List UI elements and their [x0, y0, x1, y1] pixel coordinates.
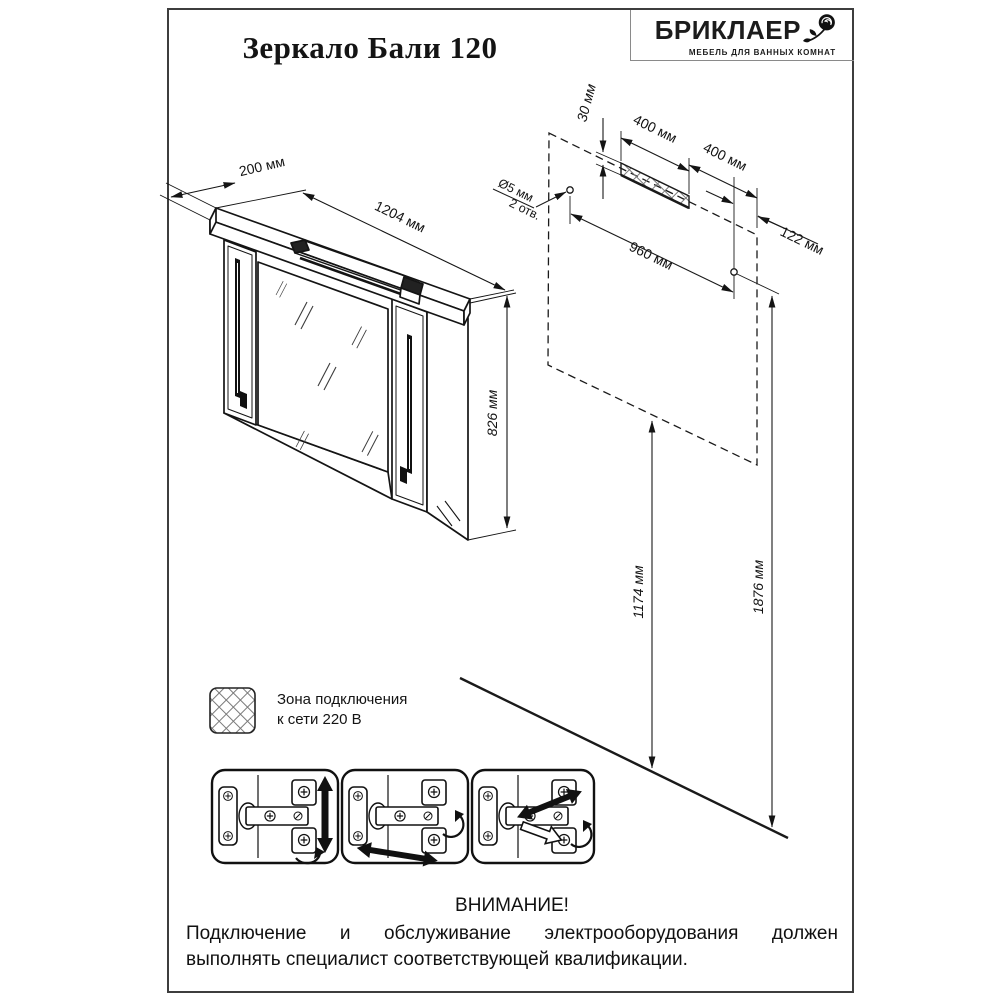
technical-drawing: 30 мм 400 мм 400 мм Ø5 мм 2 отв. 122 мм … [0, 0, 1000, 1000]
label-floor-to-bottom: 1174 мм [630, 565, 646, 619]
mounting-hole-left [567, 187, 573, 193]
label-height: 826 мм [484, 389, 500, 436]
legend: Зона подключения к сети 220 В [210, 688, 407, 733]
dimension-zone-offset [689, 165, 757, 198]
warning-line1: Подключение и обслуживание электрооборуд… [186, 921, 838, 947]
hole-leader [536, 192, 566, 207]
left-door [224, 240, 256, 425]
cabinet-drawing [160, 183, 516, 540]
warning-block: ВНИМАНИЕ! Подключение и обслуживание эле… [186, 893, 838, 973]
hinge-adjustment-diagram-3 [472, 770, 594, 863]
legend-line1: Зона подключения [277, 691, 407, 708]
hinge-adjustment-diagrams [212, 770, 594, 869]
right-handle-foot [400, 466, 407, 484]
warning-line2: выполнять специалист соответствующей ква… [186, 947, 838, 973]
legend-line2: к сети 220 В [277, 711, 362, 728]
label-zone-offset: 400 мм [701, 139, 750, 174]
right-side-panel [427, 312, 468, 540]
warning-title: ВНИМАНИЕ! [186, 893, 838, 919]
label-zone-width: 400 мм [631, 111, 680, 146]
label-zone-height: 30 мм [573, 82, 599, 124]
label-hole-to-edge: 122 мм [778, 223, 827, 258]
left-handle-foot [240, 391, 247, 409]
hinge-adjustment-diagram-1 [212, 770, 338, 863]
connection-zone [621, 163, 689, 208]
mounting-hole-right [731, 269, 737, 275]
legend-hatch-swatch [210, 688, 255, 733]
right-door [392, 299, 427, 512]
instruction-sheet: Зеркало Бали 120 БРИКЛАЕР МЕБЕЛЬ ДЛЯ ВАН… [0, 0, 1000, 1000]
label-hole-span: 960 мм [627, 238, 676, 273]
label-floor-to-holes: 1876 мм [750, 559, 766, 614]
label-depth: 200 мм [237, 153, 286, 179]
hinge-adjustment-diagram-2 [342, 770, 468, 869]
wall-mounting-diagram [460, 118, 818, 838]
dimension-zone-width [621, 138, 689, 171]
